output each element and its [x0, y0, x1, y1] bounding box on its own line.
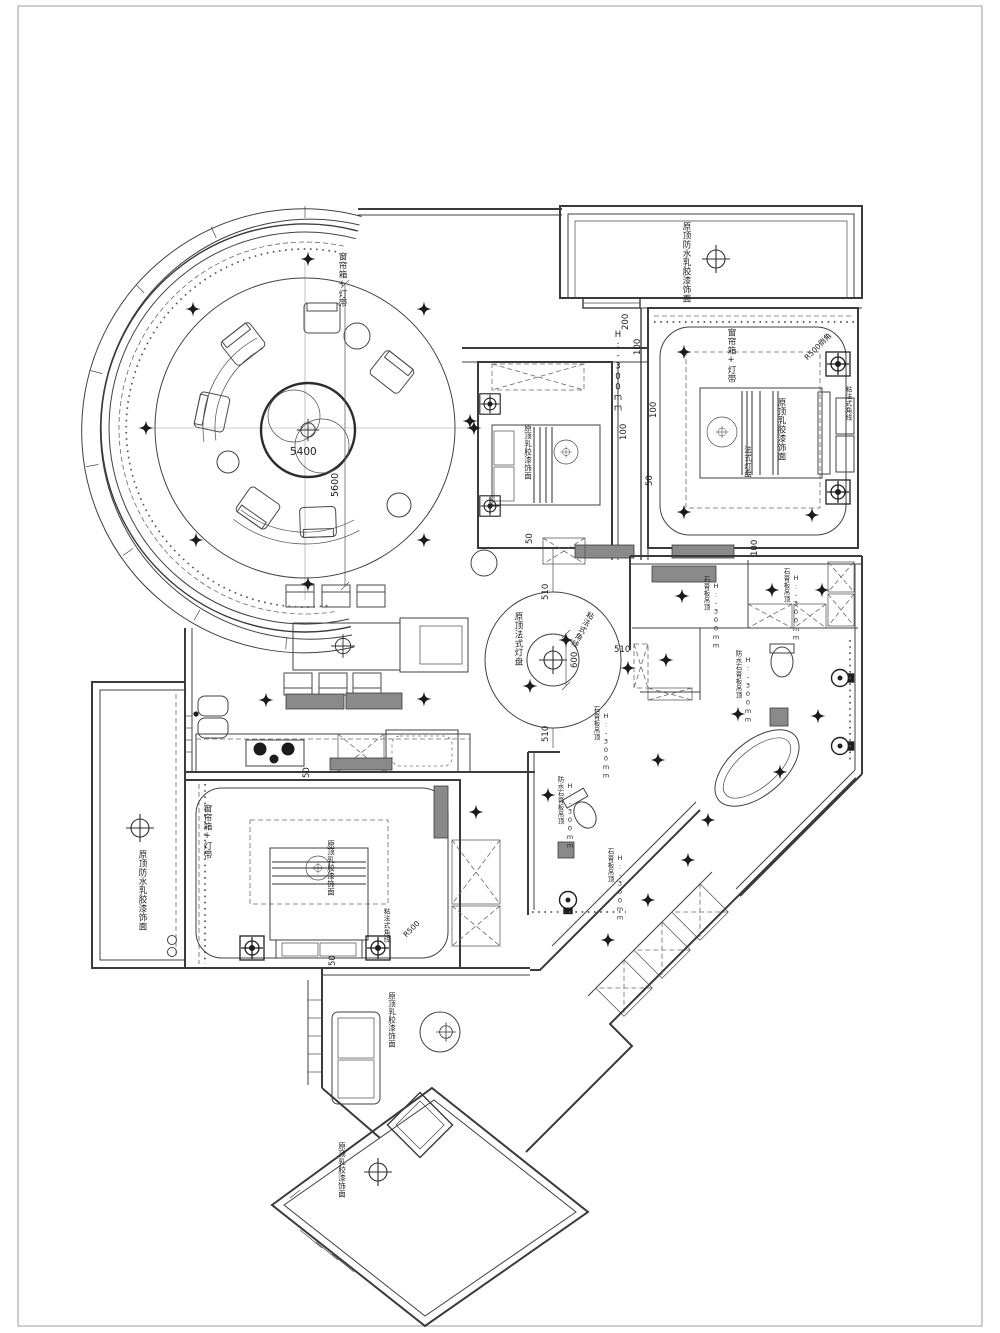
label-french-plate: 原顶法式灯盘 [513, 612, 523, 666]
label-height-corridor2: H:-300mm [616, 854, 624, 922]
dim-510: 510 [541, 584, 551, 600]
dim-5600: 5600 [330, 473, 341, 497]
dim-100: 100 [649, 402, 659, 418]
dim-100: 100 [750, 540, 760, 556]
label-height-corridor: H:-300mm [613, 330, 623, 414]
sheet-border [18, 6, 982, 1326]
floor-plan-canvas: 5400 5600 窗帘箱+灯带 原顶防水乳胶漆饰面 200 100 [0, 0, 1000, 1333]
sideboard [346, 693, 402, 709]
label-latex-small: 原顶乳胶漆饰面 [523, 424, 532, 481]
label-latex-diamond: 原顶乳胶漆饰面 [337, 1142, 346, 1199]
dim-50: 50 [645, 475, 655, 486]
dim-100: 100 [619, 424, 629, 440]
label-height-bath2: H:-300mm [566, 782, 574, 850]
label-height-laundry: H:-300mm [712, 582, 720, 650]
label-curtain-bottom: 窗帘箱+灯带 [202, 803, 212, 860]
label-waterproof-balcony-top: 原顶防水乳胶漆饰面 [681, 222, 691, 303]
label-latex-bottom: 原顶乳胶漆饰面 [326, 840, 335, 897]
label-gypsum-wc: 石膏板吊顶 [782, 568, 790, 604]
label-curtain-living: 窗帘箱+灯带 [337, 251, 347, 307]
dim-50: 50 [525, 533, 535, 544]
dim-50: 50 [328, 955, 338, 966]
label-height-wc: H:-300mm [792, 574, 800, 642]
shower-drain [770, 708, 788, 726]
label-gypsum-laundry: 石膏板吊顶 [702, 576, 710, 612]
label-latex-master: 原顶乳胶漆饰面 [776, 398, 786, 461]
dim-200: 200 [621, 314, 631, 330]
label-wp-gypsum-bath: 防水石膏板吊顶 [734, 649, 742, 700]
dim-50: 50 [302, 767, 312, 778]
dim-510: 510 [614, 645, 630, 655]
label-waterproof-balcony-left: 原顶防水乳胶漆饰面 [137, 850, 147, 931]
label-height-bath: H:-300mm [744, 656, 752, 724]
wardrobe-strip [434, 786, 448, 838]
dim-600: 600 [570, 652, 580, 668]
sideboard [286, 694, 344, 709]
dim-510: 510 [541, 726, 551, 742]
curtain-box [330, 758, 392, 770]
drawing-page: 5400 5600 窗帘箱+灯带 原顶防水乳胶漆饰面 200 100 [0, 0, 1000, 1333]
label-gypsum-corridor: 石膏板吊顶 [606, 848, 614, 884]
curtain-box [575, 545, 634, 558]
label-latex-study: 原顶乳胶漆饰面 [387, 992, 396, 1049]
label-wp-gypsum-bath2: 防水石膏板吊顶 [556, 775, 564, 826]
label-corner-master: 粘法式角线 [844, 385, 852, 421]
label-curtain-master: 窗帘箱+灯带 [726, 327, 736, 384]
label-height-hall: H:-300mm [602, 712, 610, 780]
label-french-disc: 法式灯盘 [743, 445, 752, 478]
label-gypsum-hall: 石膏板吊顶 [592, 706, 600, 742]
label-corner-bottom: 粘法式角线 [382, 907, 390, 943]
dim-5400: 5400 [290, 446, 317, 458]
